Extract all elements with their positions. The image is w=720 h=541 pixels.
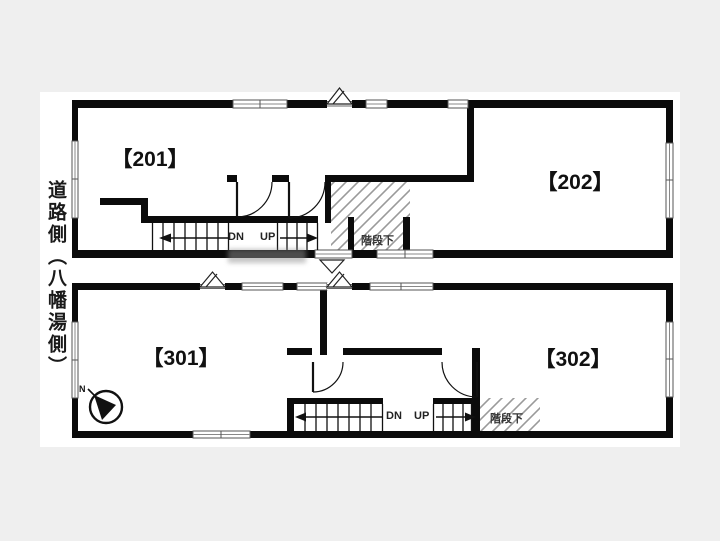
room-201-label: 【201】 [105, 143, 195, 173]
lower-stairs-up-label: UP [414, 410, 429, 422]
room-302-label: 【302】 [528, 343, 618, 373]
smudge-artifact [228, 249, 306, 263]
upper-floor-doors [237, 182, 325, 218]
lower-under-stairs-label: 階段下 [490, 410, 523, 426]
compass-icon: N [79, 384, 122, 423]
floor-plan-page: N 道路側（八幡湯側） 【201】 【202】 【301】 【302】 DN U… [0, 0, 720, 541]
street-side-label: 道路側（八幡湯側） [42, 180, 69, 378]
upper-stairs-up-label: UP [260, 231, 275, 243]
svg-text:N: N [79, 384, 86, 394]
floor-plan-canvas: N [0, 0, 720, 541]
upper-stairs-down-label: DN [228, 231, 244, 243]
lower-floor-doors [313, 362, 477, 397]
room-202-label: 【202】 [530, 166, 620, 196]
upper-under-stairs-label: 階段下 [361, 232, 394, 248]
room-301-label: 【301】 [136, 342, 226, 372]
lower-stairs-down-label: DN [386, 410, 402, 422]
